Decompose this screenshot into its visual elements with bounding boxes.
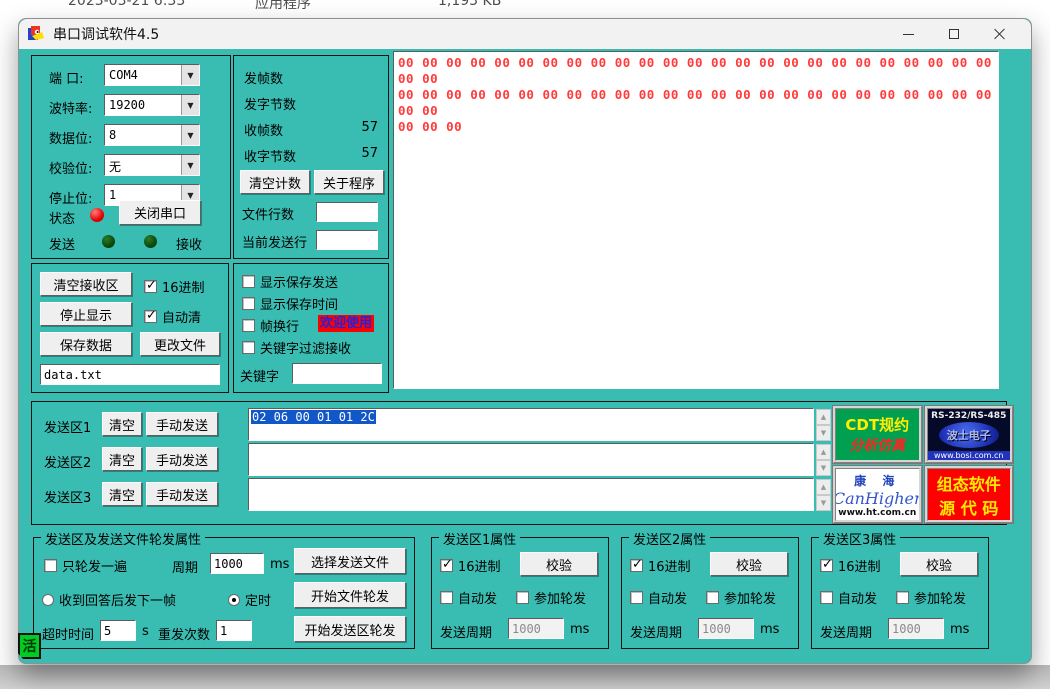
window-body: 端 口: COM4 波特率: 19200 数据位: 8 校验位: 无 — [19, 49, 1031, 663]
chevron-down-icon[interactable] — [181, 65, 199, 85]
canhigher-logo-en: CanHigher — [833, 489, 922, 508]
cycle-send-title: 发送区及发送文件轮发属性 — [41, 529, 205, 548]
checkbox-icon — [896, 591, 909, 604]
port-label: 端 口: — [49, 68, 84, 87]
area2-hex-checkbox[interactable]: 16进制 — [630, 556, 691, 575]
arrow-down-icon[interactable] — [816, 495, 831, 511]
app-icon — [28, 26, 46, 42]
area3-props-panel: 发送区3属性 16进制 校验 自动发 参加轮发 发送周期 ms — [811, 537, 989, 649]
autoclear-checkbox[interactable]: 自动清 — [144, 307, 201, 326]
timeout-s-label: s — [142, 624, 149, 639]
send-area3-manual-button[interactable]: 手动发送 — [146, 482, 218, 506]
window-title: 串口调试软件4.5 — [53, 24, 159, 44]
file-date: 2023-03-21 6:33 — [68, 0, 185, 9]
send-area2-scrollbar[interactable] — [816, 444, 831, 476]
checkbox-icon — [820, 559, 833, 572]
checkbox-icon — [242, 275, 255, 288]
port-value: COM4 — [105, 65, 181, 85]
timeout-label: 超时时间 — [42, 624, 94, 643]
recv-frames-label: 收帧数 — [244, 120, 283, 139]
hex-line: 00 00 00 00 00 00 00 00 00 00 00 00 00 0… — [398, 87, 994, 119]
baud-label: 波特率: — [49, 98, 92, 117]
receive-control-panel: 清空接收区 16进制 停止显示 自动清 保存数据 更改文件 — [31, 263, 229, 393]
area2-period-field — [698, 618, 754, 639]
area1-hex-label: 16进制 — [458, 556, 501, 575]
recv-frames-value: 57 — [361, 120, 378, 139]
area1-props-panel: 发送区1属性 16进制 校验 自动发 参加轮发 发送周期 ms — [431, 537, 609, 649]
radio-icon — [42, 594, 54, 606]
change-file-button[interactable]: 更改文件 — [140, 332, 220, 356]
area2-props-title: 发送区2属性 — [629, 529, 710, 548]
hex-display-label: 16进制 — [162, 277, 205, 296]
area3-verify-button[interactable]: 校验 — [900, 552, 978, 576]
area3-period-label: 发送周期 — [820, 622, 872, 641]
frame-wrap-checkbox[interactable]: 帧换行 — [242, 316, 299, 335]
globe-icon: 波士电子 — [939, 422, 999, 448]
send-area1-label: 发送区1 — [44, 417, 91, 436]
timer-mode-radio[interactable]: 定时 — [228, 590, 271, 609]
scada-logo-line1: 组态软件 — [937, 471, 1001, 495]
maximize-icon — [949, 29, 959, 39]
file-type: 应用程序 — [255, 0, 311, 13]
counters-panel: 发帧数 发字节数 收帧数 57 收字节数 57 清空计数 关于程序 文件行数 — [233, 55, 389, 259]
status-led — [90, 208, 104, 222]
databits-label: 数据位: — [49, 128, 92, 147]
arrow-up-icon[interactable] — [816, 479, 831, 495]
cycle-once-checkbox[interactable]: 只轮发一遍 — [44, 556, 127, 575]
autoclear-label: 自动清 — [162, 307, 201, 326]
title-bar[interactable]: 串口调试软件4.5 — [19, 19, 1031, 49]
area1-verify-button[interactable]: 校验 — [520, 552, 598, 576]
parity-value: 无 — [105, 155, 181, 175]
clear-receive-button[interactable]: 清空接收区 — [40, 272, 132, 296]
area1-auto-checkbox[interactable]: 自动发 — [440, 588, 497, 607]
frame-wrap-label: 帧换行 — [260, 316, 299, 335]
arrow-up-icon[interactable] — [816, 409, 831, 425]
timeout-field[interactable] — [100, 620, 136, 641]
area2-period-label: 发送周期 — [630, 622, 682, 641]
parity-label: 校验位: — [49, 158, 92, 177]
keyword-field[interactable] — [292, 363, 382, 384]
cycle-once-label: 只轮发一遍 — [62, 556, 127, 575]
canhigher-logo[interactable]: 康 海 CanHigher www.ht.com.cn — [833, 466, 922, 523]
tx-led — [102, 235, 115, 248]
area3-join-checkbox[interactable]: 参加轮发 — [896, 588, 966, 607]
cycle-send-panel: 发送区及发送文件轮发属性 只轮发一遍 周期 ms 收到回答后发下一帧 定时 超时… — [33, 537, 415, 649]
file-lines-field[interactable] — [316, 202, 378, 222]
keyword-label: 关键字 — [240, 366, 279, 385]
app-window: 串口调试软件4.5 端 口: COM4 波特率: 19200 — [18, 18, 1032, 664]
rx-label: 接收 — [176, 234, 202, 253]
welcome-badge: 欢迎使用 — [318, 315, 374, 332]
baud-select[interactable]: 19200 — [104, 94, 200, 116]
send-area1-clear-button[interactable]: 清空 — [102, 412, 142, 436]
area3-auto-checkbox[interactable]: 自动发 — [820, 588, 877, 607]
area2-join-checkbox[interactable]: 参加轮发 — [706, 588, 776, 607]
send-area1-input[interactable]: 02 06 00 01 01 2C — [248, 408, 814, 441]
recv-bytes-value: 57 — [361, 146, 378, 165]
send-area1-manual-button[interactable]: 手动发送 — [146, 412, 218, 436]
close-port-button[interactable]: 关闭串口 — [119, 200, 201, 225]
answer-mode-radio[interactable]: 收到回答后发下一帧 — [42, 590, 176, 609]
area1-period-label: 发送周期 — [440, 622, 492, 641]
recv-bytes-label: 收字节数 — [244, 146, 296, 165]
send-area2-manual-button[interactable]: 手动发送 — [146, 447, 218, 471]
retry-field[interactable] — [216, 620, 252, 641]
area3-join-label: 参加轮发 — [914, 588, 966, 607]
cdt-logo-line1: CDT规约 — [845, 414, 909, 435]
keyword-filter-checkbox[interactable]: 关键字过滤接收 — [242, 338, 351, 357]
area2-verify-button[interactable]: 校验 — [710, 552, 788, 576]
hex-line: 00 00 00 — [398, 119, 994, 135]
checkbox-icon — [242, 297, 255, 310]
bosi-logo-line2: 波士电子 — [947, 427, 991, 443]
receive-area[interactable]: 00 00 00 00 00 00 00 00 00 00 00 00 00 0… — [393, 51, 999, 389]
send-area3-clear-button[interactable]: 清空 — [102, 482, 142, 506]
show-saved-send-checkbox[interactable]: 显示保存发送 — [242, 272, 338, 291]
save-filename-field[interactable] — [40, 364, 220, 385]
databits-value: 8 — [105, 125, 181, 145]
area1-hex-checkbox[interactable]: 16进制 — [440, 556, 501, 575]
logo-grid: CDT规约 分析仿真 RS-232/RS-485 波士电子 www.bosi.c… — [833, 406, 1013, 523]
save-data-button[interactable]: 保存数据 — [40, 332, 132, 356]
send-area3-scrollbar[interactable] — [816, 479, 831, 511]
hex-line: 00 00 00 00 00 00 00 00 00 00 00 00 00 0… — [398, 55, 994, 87]
checkbox-icon — [144, 280, 157, 293]
canhigher-logo-url: www.ht.com.cn — [838, 508, 916, 518]
period-label: 周期 — [172, 557, 198, 576]
checkbox-icon — [144, 310, 157, 323]
bosi-logo-url: www.bosi.com.cn — [928, 451, 1011, 460]
minimize-icon — [903, 34, 914, 35]
about-button[interactable]: 关于程序 — [314, 170, 384, 194]
current-line-label: 当前发送行 — [242, 232, 307, 251]
retry-label: 重发次数 — [158, 624, 210, 643]
file-lines-label: 文件行数 — [242, 204, 294, 223]
area2-props-panel: 发送区2属性 16进制 校验 自动发 参加轮发 发送周期 ms — [621, 537, 799, 649]
sent-bytes-label: 发字节数 — [244, 94, 296, 113]
screen: 2023-03-21 6:33 应用程序 1,193 KB 串口调试软件4.5 — [0, 0, 1050, 689]
parity-select[interactable]: 无 — [104, 154, 200, 176]
sent-frames-label: 发帧数 — [244, 68, 283, 87]
ime-indicator[interactable]: 活 — [18, 633, 41, 659]
checkbox-icon — [44, 559, 57, 572]
send-area2-label: 发送区2 — [44, 452, 91, 471]
show-saved-time-label: 显示保存时间 — [260, 294, 338, 313]
area3-auto-label: 自动发 — [838, 588, 877, 607]
hex-display-checkbox[interactable]: 16进制 — [144, 277, 205, 296]
checkbox-icon — [242, 341, 255, 354]
send-area3-input[interactable] — [248, 478, 814, 511]
select-send-file-button[interactable]: 选择发送文件 — [294, 548, 406, 574]
period-ms-label: ms — [270, 557, 289, 572]
scada-logo-line2: 源 代 码 — [939, 495, 998, 519]
send-area2-clear-button[interactable]: 清空 — [102, 447, 142, 471]
area3-hex-checkbox[interactable]: 16进制 — [820, 556, 881, 575]
checkbox-icon — [440, 559, 453, 572]
area2-ms-label: ms — [760, 622, 779, 637]
send-area3-label: 发送区3 — [44, 487, 91, 506]
checkbox-icon — [516, 591, 529, 604]
area1-join-checkbox[interactable]: 参加轮发 — [516, 588, 586, 607]
answer-mode-label: 收到回答后发下一帧 — [59, 590, 176, 609]
area2-join-label: 参加轮发 — [724, 588, 776, 607]
chevron-down-icon[interactable] — [181, 95, 199, 115]
background-explorer-row: 2023-03-21 6:33 应用程序 1,193 KB — [0, 0, 1050, 14]
timer-mode-label: 定时 — [245, 590, 271, 609]
close-icon — [994, 28, 1006, 40]
arrow-down-icon[interactable] — [816, 425, 831, 441]
checkbox-icon — [706, 591, 719, 604]
area1-ms-label: ms — [570, 622, 589, 637]
area3-props-title: 发送区3属性 — [819, 529, 900, 548]
area1-props-title: 发送区1属性 — [439, 529, 520, 548]
maximize-button[interactable] — [931, 19, 977, 49]
file-size: 1,193 KB — [438, 0, 501, 9]
bosi-logo-line1: RS-232/RS-485 — [931, 411, 1006, 421]
checkbox-icon — [820, 591, 833, 604]
status-label: 状态 — [49, 208, 75, 227]
area2-hex-label: 16进制 — [648, 556, 691, 575]
cdt-logo-line2: 分析仿真 — [849, 435, 905, 455]
arrow-down-icon[interactable] — [816, 460, 831, 476]
send-area2-input[interactable] — [248, 443, 814, 476]
send-area1-text: 02 06 00 01 01 2C — [251, 410, 376, 424]
close-button[interactable] — [977, 19, 1023, 49]
bosi-electronics-logo[interactable]: RS-232/RS-485 波士电子 www.bosi.com.cn — [925, 406, 1014, 463]
scada-source-logo[interactable]: 组态软件 源 代 码 — [925, 466, 1014, 523]
start-area-cycle-button[interactable]: 开始发送区轮发 — [294, 616, 406, 642]
cdt-protocol-logo[interactable]: CDT规约 分析仿真 — [833, 406, 922, 463]
show-saved-send-label: 显示保存发送 — [260, 272, 338, 291]
area1-join-label: 参加轮发 — [534, 588, 586, 607]
start-file-cycle-button[interactable]: 开始文件轮发 — [294, 582, 406, 608]
checkbox-icon — [630, 559, 643, 572]
rx-led — [144, 235, 157, 248]
send-area1-scrollbar[interactable] — [816, 409, 831, 441]
chevron-down-icon[interactable] — [181, 155, 199, 175]
minimize-button[interactable] — [885, 19, 931, 49]
checkbox-icon — [630, 591, 643, 604]
area2-auto-checkbox[interactable]: 自动发 — [630, 588, 687, 607]
stopbits-label: 停止位: — [49, 188, 92, 207]
period-field[interactable] — [210, 553, 264, 574]
display-options-panel: 显示保存发送 显示保存时间 帧换行 欢迎使用 关键字过滤接收 关键字 — [233, 263, 389, 393]
area2-auto-label: 自动发 — [648, 588, 687, 607]
stop-display-button[interactable]: 停止显示 — [40, 302, 132, 326]
canhigher-logo-cn: 康 海 — [854, 472, 900, 489]
current-line-field[interactable] — [316, 230, 378, 250]
clear-count-button[interactable]: 清空计数 — [240, 170, 310, 194]
area1-period-field — [508, 618, 564, 639]
area1-auto-label: 自动发 — [458, 588, 497, 607]
checkbox-icon — [440, 591, 453, 604]
show-saved-time-checkbox[interactable]: 显示保存时间 — [242, 294, 338, 313]
desktop-strip — [0, 665, 1050, 689]
area3-hex-label: 16进制 — [838, 556, 881, 575]
arrow-up-icon[interactable] — [816, 444, 831, 460]
serial-settings-panel: 端 口: COM4 波特率: 19200 数据位: 8 校验位: 无 — [31, 55, 231, 259]
baud-value: 19200 — [105, 95, 181, 115]
checkbox-icon — [242, 319, 255, 332]
send-group-panel: 发送区1 清空 手动发送 02 06 00 01 01 2C 发送区2 清空 手… — [31, 401, 1007, 525]
area3-period-field — [888, 618, 944, 639]
databits-select[interactable]: 8 — [104, 124, 200, 146]
keyword-filter-label: 关键字过滤接收 — [260, 338, 351, 357]
chevron-down-icon[interactable] — [181, 125, 199, 145]
area3-ms-label: ms — [950, 622, 969, 637]
port-select[interactable]: COM4 — [104, 64, 200, 86]
tx-label: 发送 — [49, 234, 75, 253]
radio-icon — [228, 594, 240, 606]
